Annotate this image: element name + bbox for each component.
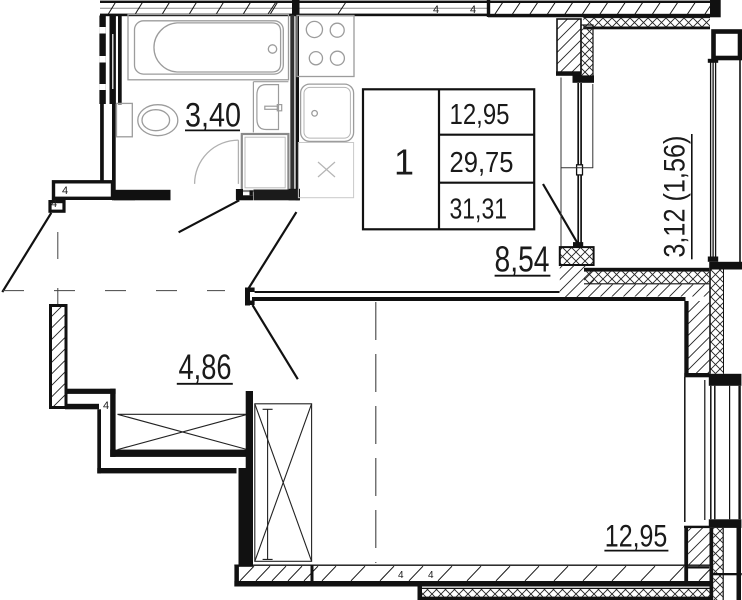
svg-text:4: 4 — [433, 4, 439, 16]
svg-text:4,86: 4,86 — [179, 348, 232, 387]
svg-text:4: 4 — [470, 4, 476, 16]
svg-text:4: 4 — [398, 570, 404, 581]
svg-text:12,95: 12,95 — [450, 99, 510, 131]
svg-text:12,95: 12,95 — [605, 517, 668, 553]
svg-text:3,40: 3,40 — [185, 97, 241, 135]
svg-text:4: 4 — [428, 570, 434, 581]
svg-text:3,12 (1,56): 3,12 (1,56) — [658, 136, 691, 258]
svg-text:31,31: 31,31 — [450, 194, 508, 226]
svg-text:4: 4 — [51, 198, 57, 210]
svg-text:4: 4 — [103, 400, 109, 412]
svg-text:4: 4 — [62, 185, 68, 197]
svg-text:29,75: 29,75 — [450, 147, 514, 179]
svg-text:1: 1 — [394, 142, 414, 183]
svg-text:8,54: 8,54 — [495, 239, 550, 280]
